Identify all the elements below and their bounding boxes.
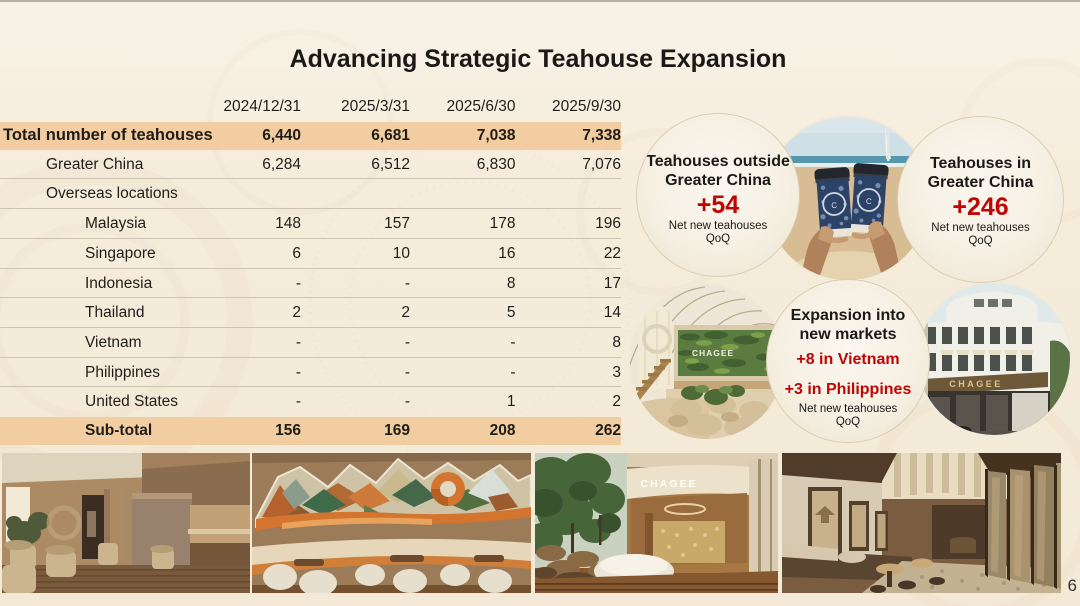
svg-text:C: C [866, 197, 873, 206]
svg-text:C: C [831, 201, 838, 210]
svg-text:CHAGEE: CHAGEE [641, 478, 698, 490]
svg-text:CHAGEE: CHAGEE [949, 379, 1003, 389]
svg-text:CHAGEE: CHAGEE [692, 348, 734, 358]
